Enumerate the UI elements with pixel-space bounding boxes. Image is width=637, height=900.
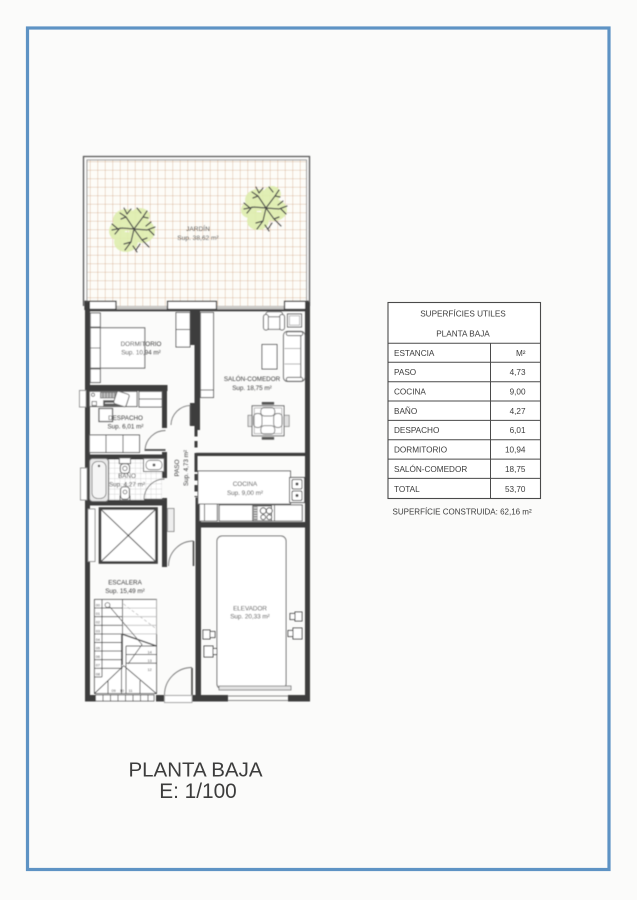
- svg-text:Sup. 4,27 m²: Sup. 4,27 m²: [109, 481, 145, 488]
- svg-text:SUPERFÍCIE CONSTRUIDA: 62,16 m: SUPERFÍCIE CONSTRUIDA: 62,16 m²: [393, 508, 532, 517]
- svg-text:6,01: 6,01: [510, 426, 526, 435]
- svg-text:04: 04: [96, 638, 100, 642]
- svg-text:08: 08: [96, 672, 100, 676]
- svg-text:JARDÍN: JARDÍN: [186, 224, 210, 233]
- svg-text:ESCALERA: ESCALERA: [108, 580, 142, 587]
- svg-text:SALÓN-COMEDOR: SALÓN-COMEDOR: [224, 374, 281, 383]
- svg-text:53,70: 53,70: [505, 485, 526, 494]
- svg-text:BAÑO: BAÑO: [118, 471, 136, 480]
- svg-text:PASO: PASO: [394, 368, 416, 377]
- svg-text:M²: M²: [516, 349, 526, 358]
- svg-text:Sup. 10,94 m²: Sup. 10,94 m²: [121, 349, 161, 356]
- svg-text:06: 06: [96, 655, 100, 659]
- svg-text:Sup. 38,62 m²: Sup. 38,62 m²: [177, 235, 219, 242]
- svg-text:DORMITORIO: DORMITORIO: [394, 446, 447, 455]
- svg-text:9,00: 9,00: [510, 388, 526, 397]
- svg-text:COCINA: COCINA: [233, 481, 258, 488]
- svg-text:05: 05: [96, 647, 100, 651]
- svg-text:ESTANCIA: ESTANCIA: [394, 349, 435, 358]
- svg-text:DESPACHO: DESPACHO: [394, 426, 439, 435]
- svg-text:PLANTA BAJA: PLANTA BAJA: [436, 330, 490, 339]
- svg-text:13: 13: [148, 659, 152, 663]
- svg-text:4,27: 4,27: [510, 407, 526, 416]
- svg-text:Sup. 15,49 m²: Sup. 15,49 m²: [105, 588, 145, 595]
- svg-text:Sup. 18,75 m²: Sup. 18,75 m²: [232, 385, 272, 392]
- svg-text:DESPACHO: DESPACHO: [108, 415, 143, 422]
- svg-text:18,75: 18,75: [505, 465, 526, 474]
- svg-text:Sup. 9,00 m²: Sup. 9,00 m²: [227, 490, 263, 497]
- svg-text:DORMITORIO: DORMITORIO: [121, 341, 162, 348]
- svg-text:10: 10: [120, 689, 124, 693]
- svg-text:SALÓN-COMEDOR: SALÓN-COMEDOR: [394, 464, 467, 474]
- svg-text:SUPERFÍCIES UTILES: SUPERFÍCIES UTILES: [420, 309, 506, 319]
- svg-text:E: 1/100: E: 1/100: [159, 780, 236, 803]
- svg-text:ELEVADOR: ELEVADOR: [233, 606, 267, 613]
- svg-text:02: 02: [96, 621, 100, 625]
- svg-text:01: 01: [96, 612, 100, 616]
- svg-text:03: 03: [96, 629, 100, 633]
- svg-text:Sup. 6,01 m²: Sup. 6,01 m²: [107, 423, 143, 430]
- svg-text:PASO: PASO: [174, 459, 181, 476]
- svg-text:11: 11: [129, 689, 133, 693]
- svg-text:09: 09: [112, 689, 116, 693]
- svg-text:4,73: 4,73: [510, 368, 526, 377]
- svg-text:00: 00: [96, 604, 100, 608]
- svg-text:12: 12: [148, 668, 152, 672]
- svg-text:Sup. 20,33 m²: Sup. 20,33 m²: [230, 614, 270, 621]
- svg-text:Sup. 4,73 m²: Sup. 4,73 m²: [183, 450, 190, 486]
- svg-text:14: 14: [148, 650, 152, 654]
- svg-text:10,94: 10,94: [505, 446, 526, 455]
- svg-text:BAÑO: BAÑO: [394, 406, 417, 416]
- svg-text:07: 07: [96, 664, 100, 668]
- svg-text:PLANTA BAJA: PLANTA BAJA: [128, 759, 262, 782]
- svg-text:COCINA: COCINA: [394, 388, 426, 397]
- svg-text:TOTAL: TOTAL: [394, 485, 420, 494]
